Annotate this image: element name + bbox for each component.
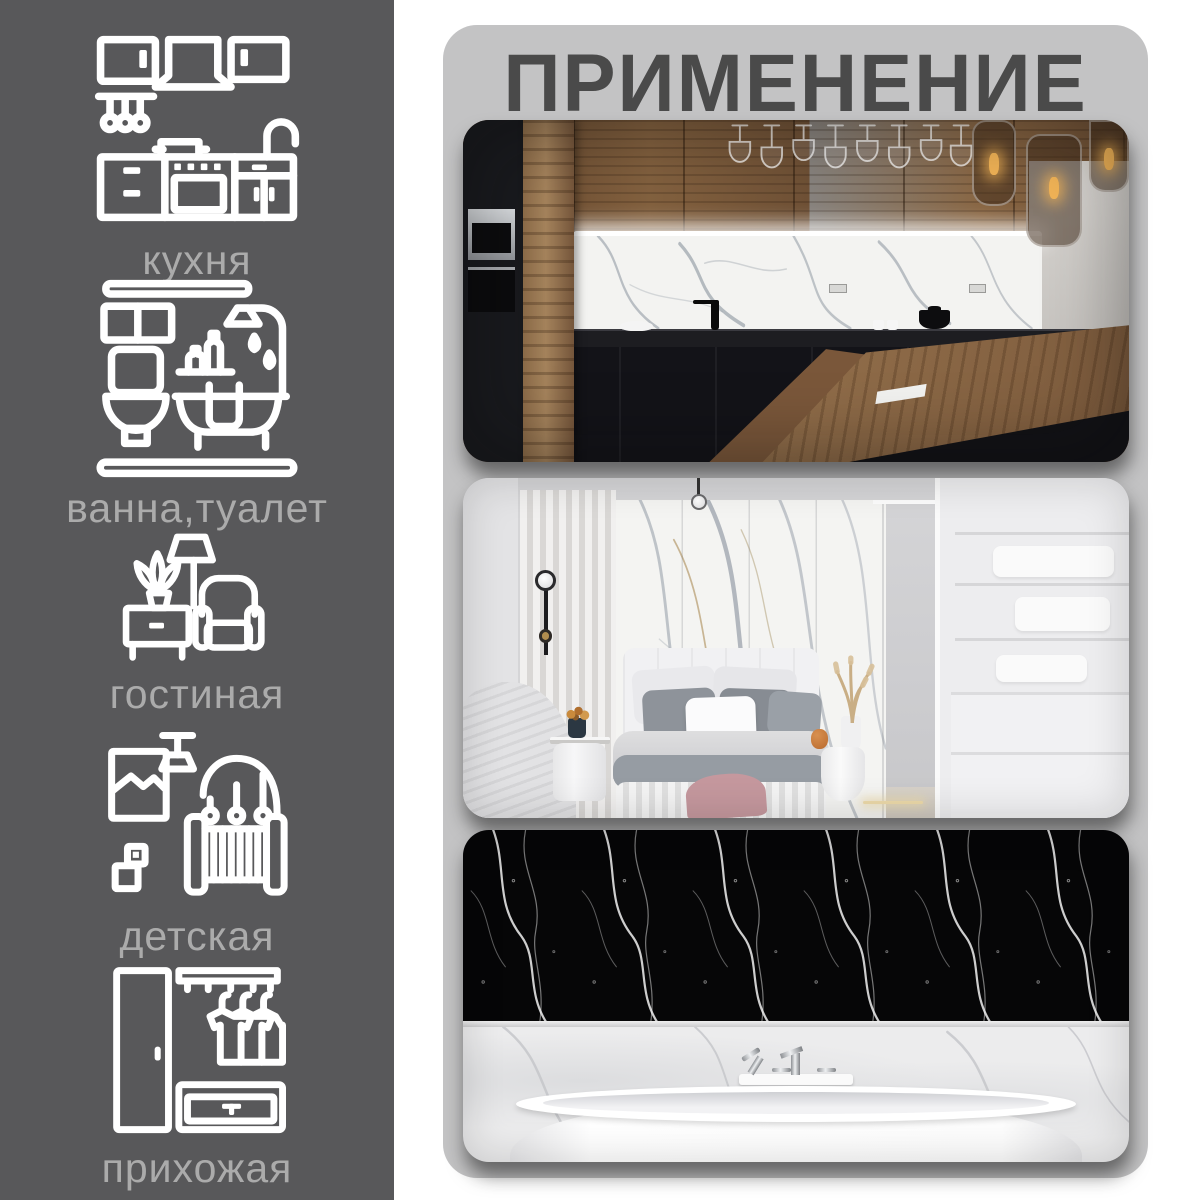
marble-veins: [573, 236, 1043, 328]
sidebar-item-label: кухня: [142, 240, 251, 281]
wall-socket: [829, 284, 846, 293]
storage-box: [996, 655, 1087, 682]
sidebar-item-label: прихожая: [102, 1148, 293, 1189]
orange-flowers: [562, 705, 593, 722]
hanging-wine-glasses: [723, 120, 976, 188]
nursery-icon: [99, 732, 295, 908]
application-panel: ПРИМЕНЕНИЕ: [443, 25, 1148, 1178]
marble-backsplash: [573, 236, 1043, 328]
black-kettle: [919, 310, 950, 329]
open-wardrobe: [935, 478, 1129, 818]
sconce-rod: [544, 580, 547, 655]
wall-socket: [969, 284, 986, 293]
sidebar-item-bathroom: ванна,туалет: [0, 278, 394, 529]
pedestal-table-right: [821, 747, 865, 801]
stored-pillow: [1015, 597, 1110, 631]
hallway-icon: [106, 962, 288, 1140]
wardrobe-shelf: [955, 583, 1129, 586]
faucet-handle: [817, 1068, 836, 1073]
wardrobe-drawers: [951, 692, 1129, 818]
wardrobe-shelf: [955, 532, 1129, 535]
black-marble-wall: [463, 830, 1129, 1023]
white-cup: [887, 320, 898, 330]
white-bowl: [620, 321, 653, 331]
pendant-globe: [691, 494, 707, 510]
oven-door: [472, 223, 511, 254]
built-in-oven-lower: [468, 267, 515, 311]
bath-spout: [791, 1053, 800, 1075]
faucet-handle: [772, 1068, 791, 1073]
glass-pendant-light: [1026, 134, 1083, 247]
kitchen-photo: [463, 120, 1129, 462]
sconce-ring: [539, 629, 552, 643]
bathroom-photo: [463, 830, 1129, 1162]
wood-pillar: [523, 120, 574, 462]
infographic: кухня ванна,туалет: [0, 0, 1200, 1200]
black-faucet-spout: [693, 300, 718, 305]
sidebar-item-nursery: детская: [0, 732, 394, 957]
sidebar-item-label: ванна,туалет: [66, 488, 328, 529]
sidebar-item-hallway: прихожая: [0, 962, 394, 1189]
sconce-globe: [535, 570, 556, 591]
kitchen-icon: [93, 30, 301, 228]
faucet-deck: [739, 1074, 852, 1085]
bathroom-icon: [83, 278, 311, 480]
bedroom-photo: [463, 478, 1129, 818]
living-room-icon: [99, 532, 295, 664]
sidebar-item-label: гостиная: [110, 674, 285, 715]
black-faucet: [711, 300, 719, 331]
side-table-left: [553, 743, 606, 801]
sidebar-item-label: детская: [119, 916, 274, 957]
floor-light: [863, 801, 923, 804]
sidebar-item-living-room: гостиная: [0, 532, 394, 715]
glass-pendant-light: [972, 120, 1015, 206]
sidebar: кухня ванна,туалет: [0, 0, 394, 1200]
pampas-grass: [824, 655, 881, 723]
wardrobe-shelf: [955, 638, 1129, 641]
glass-pendant-light: [1089, 120, 1129, 192]
black-marble-veins: [463, 830, 1129, 1023]
stored-pillow: [993, 546, 1114, 577]
white-cup: [873, 320, 884, 330]
orange-vase: [811, 729, 828, 749]
sidebar-item-kitchen: кухня: [0, 30, 394, 281]
page-title: ПРИМЕНЕНИЕ: [454, 43, 1138, 125]
